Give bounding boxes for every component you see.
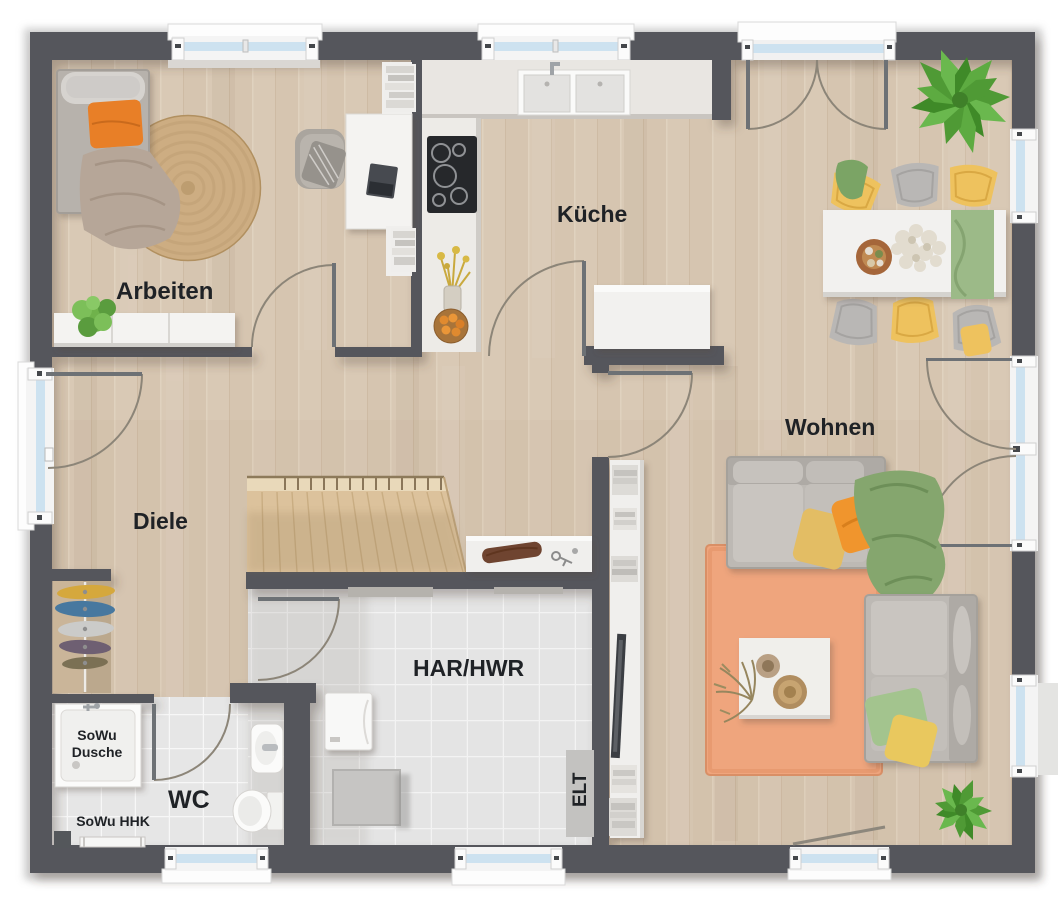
svg-text:WC: WC: [168, 786, 210, 814]
svg-text:Diele: Diele: [133, 508, 188, 534]
svg-text:Arbeiten: Arbeiten: [116, 278, 213, 305]
svg-text:SoWu HHK: SoWu HHK: [76, 813, 150, 829]
svg-text:Dusche: Dusche: [72, 744, 123, 760]
svg-text:Küche: Küche: [557, 201, 627, 227]
svg-text:SoWu: SoWu: [77, 727, 116, 743]
svg-text:ELT: ELT: [570, 772, 591, 807]
svg-text:HAR/HWR: HAR/HWR: [413, 655, 525, 681]
svg-text:Wohnen: Wohnen: [785, 414, 875, 440]
